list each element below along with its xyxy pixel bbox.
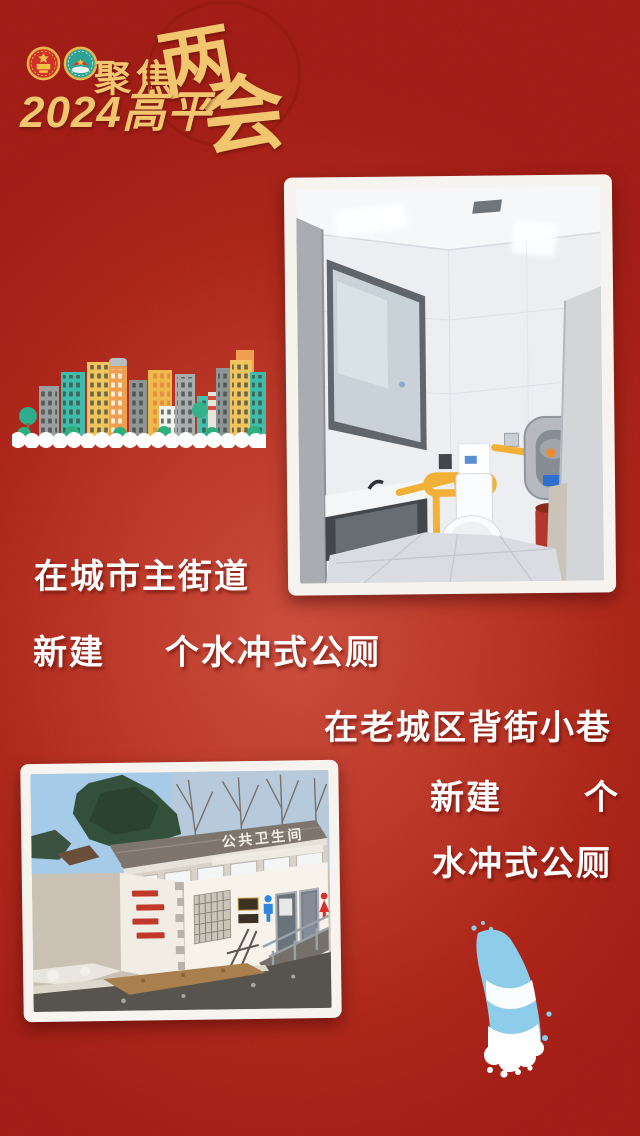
wall-switch xyxy=(439,454,452,469)
headline-alley-line2-prefix: 新建 xyxy=(430,770,502,819)
wall-outlet xyxy=(505,433,519,446)
plaque-sign-2 xyxy=(238,914,258,923)
city-skyline-illustration xyxy=(12,336,266,448)
photo-restroom-interior xyxy=(284,174,616,595)
skyline-buildings xyxy=(19,350,266,440)
headline-alley-line2-suffix: 个 xyxy=(584,770,620,819)
water-splash-illustration xyxy=(462,918,574,1078)
left-partition xyxy=(296,217,326,583)
headline-street-line2-suffix: 个水冲式公厕 xyxy=(165,625,381,674)
lattice-window xyxy=(194,890,231,943)
skylight xyxy=(510,218,558,257)
ceiling-vent xyxy=(472,199,502,213)
headline-alley-line3: 水冲式公厕 xyxy=(432,836,612,885)
photo-restroom-exterior: 公共卫生间 xyxy=(20,760,342,1022)
restroom-exterior-scene: 公共卫生间 xyxy=(30,770,331,1012)
plaque-sign xyxy=(238,898,258,910)
headline-street-line2-prefix: 新建 xyxy=(33,625,105,674)
headline-alley-line1: 在老城区背街小巷 xyxy=(324,700,612,749)
restroom-interior-scene xyxy=(296,186,604,583)
edition-title: 2024高平 xyxy=(20,76,212,140)
headline-street-line1: 在城市主街道 xyxy=(34,549,250,598)
poster-canvas: 聚焦 两 会 2024高平 xyxy=(0,0,640,1136)
headline-street-line2: 新建 个水冲式公厕 xyxy=(33,625,381,674)
headline-alley-line2: 新建 个 xyxy=(430,770,620,819)
